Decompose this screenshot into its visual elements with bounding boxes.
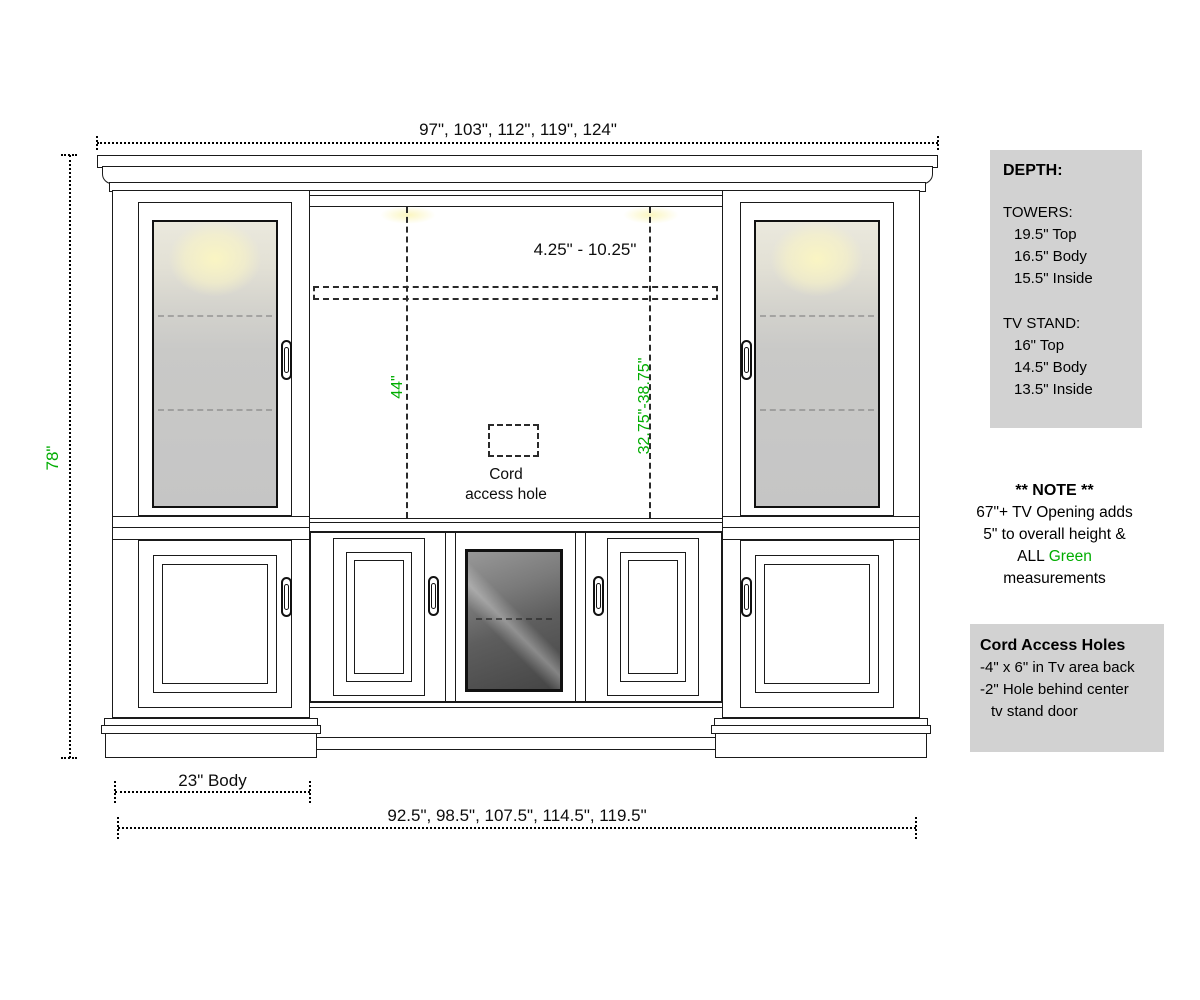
tv-stand-right-door-handle	[593, 576, 604, 616]
note-line-4: measurements	[952, 568, 1157, 590]
note-line-2: 5" to overall height &	[952, 524, 1157, 546]
right-tower-shelf-line-2	[760, 409, 874, 411]
overall-height-label: 78"	[43, 398, 63, 518]
depth-panel-towers-line: 16.5" Body	[1003, 246, 1136, 268]
note-text-block: ** NOTE ** 67"+ TV Opening adds 5" to ov…	[952, 480, 1157, 590]
right-light-glow	[623, 206, 679, 224]
tv-opening-height-range-label: 32.75"-38.75"	[636, 326, 654, 486]
overall-height-tick-top	[61, 154, 77, 156]
tv-stand-divider-left-b	[455, 532, 456, 702]
overall-height-dim-line	[69, 155, 71, 758]
depth-panel-tv-stand-line: 13.5" Inside	[1003, 379, 1136, 401]
cord-panel-line-3: tv stand door	[980, 701, 1160, 723]
tower-body-width-tick-right	[309, 781, 311, 803]
right-tower-glass-pane	[754, 220, 880, 508]
tv-stand-base	[307, 702, 725, 750]
tv-stand-base-line-upper	[308, 707, 724, 708]
right-tower-shelf-line-1	[760, 315, 874, 317]
tv-stand-divider-right-b	[585, 532, 586, 702]
tower-body-width-tick-left	[114, 781, 116, 803]
depth-panel-tv-stand-line: 14.5" Body	[1003, 357, 1136, 379]
tv-stand-top	[305, 518, 727, 532]
note-line-3-black: ALL	[1017, 548, 1045, 565]
depth-panel-tv-stand-heading: TV STAND:	[1003, 313, 1136, 335]
bottom-widths-label: 92.5", 98.5", 107.5", 114.5", 119.5"	[119, 806, 915, 826]
depth-panel-towers-line: 15.5" Inside	[1003, 268, 1136, 290]
tower-body-width-dim-line	[115, 791, 310, 793]
note-line-1: 67"+ TV Opening adds	[952, 502, 1157, 524]
overall-height-tick-bottom	[61, 757, 77, 759]
tv-stand-divider-right-a	[575, 532, 576, 702]
left-tower-plinth-block	[105, 733, 317, 758]
left-tower-glass-pane	[152, 220, 278, 508]
tv-stand-base-line-lower	[308, 737, 724, 738]
tv-stand-center-glass-door	[465, 549, 563, 692]
left-light-glow	[380, 206, 436, 224]
depth-panel-title: DEPTH:	[1003, 160, 1136, 182]
left-tower-mid-rail-line	[113, 527, 309, 528]
cord-panel-title: Cord Access Holes	[980, 635, 1160, 657]
tv-stand-left-door-handle	[428, 576, 439, 616]
bottom-widths-dim-line	[118, 827, 916, 829]
top-widths-tick-left	[96, 136, 98, 150]
right-tower-upper-door-handle	[741, 340, 752, 380]
tv-stand-top-edge-line	[306, 522, 726, 523]
tv-stand-left-door-panel	[354, 560, 404, 674]
top-widths-tick-right	[937, 136, 939, 150]
cord-panel-line-1: -4" x 6" in Tv area back	[980, 657, 1160, 679]
depth-panel-towers-line: 19.5" Top	[1003, 224, 1136, 246]
left-opening-height-label: 44"	[389, 347, 407, 427]
tv-stand-glass-shelf-line	[476, 618, 552, 620]
depth-panel-tv-stand-line: 16" Top	[1003, 335, 1136, 357]
entertainment-center-drawing: 4.25" - 10.25" 44" 32.75"-38.75" Cord ac…	[0, 0, 1200, 1000]
left-tower-shelf-line-1	[158, 315, 272, 317]
right-tower-mid-rail	[722, 516, 920, 540]
center-top-rail	[306, 190, 726, 207]
right-tower-mid-rail-line	[723, 527, 919, 528]
tower-body-width-label: 23" Body	[115, 771, 310, 791]
bottom-widths-tick-right	[915, 817, 917, 839]
top-widths-label: 97", 103", 112", 119", 124"	[298, 120, 738, 140]
note-title: ** NOTE **	[952, 480, 1157, 502]
left-tower-upper-door-handle	[281, 340, 292, 380]
top-widths-dim-line	[97, 142, 938, 144]
depth-panel-towers-heading: TOWERS:	[1003, 202, 1136, 224]
left-tower-lower-door-handle	[281, 577, 292, 617]
right-tower-plinth-block	[715, 733, 927, 758]
tv-stand-divider-left-a	[445, 532, 446, 702]
cord-access-hole-label-line2: access hole	[440, 486, 572, 504]
tv-stand-right-door-panel	[628, 560, 678, 674]
cord-access-hole-label-line1: Cord	[440, 466, 572, 484]
left-tower-lower-door-panel	[162, 564, 268, 684]
adjustable-top-shelf-band	[313, 286, 718, 300]
cord-access-hole-marker	[488, 424, 539, 457]
left-tower-mid-rail	[112, 516, 310, 540]
note-line-3-green: Green	[1049, 548, 1092, 565]
cord-panel-line-2: -2" Hole behind center	[980, 679, 1160, 701]
cord-access-holes-panel: Cord Access Holes -4" x 6" in Tv area ba…	[970, 624, 1164, 752]
left-tower-shelf-line-2	[158, 409, 272, 411]
right-tower-lower-door-panel	[764, 564, 870, 684]
right-tower-lower-door-handle	[741, 577, 752, 617]
depth-info-panel: DEPTH: TOWERS: 19.5" Top 16.5" Body 15.5…	[990, 150, 1142, 428]
center-top-rail-line	[307, 195, 725, 196]
note-line-3: ALLGreen	[952, 546, 1157, 568]
bottom-widths-tick-left	[117, 817, 119, 839]
tv-opening-adjustable-range-label: 4.25" - 10.25"	[450, 240, 720, 260]
